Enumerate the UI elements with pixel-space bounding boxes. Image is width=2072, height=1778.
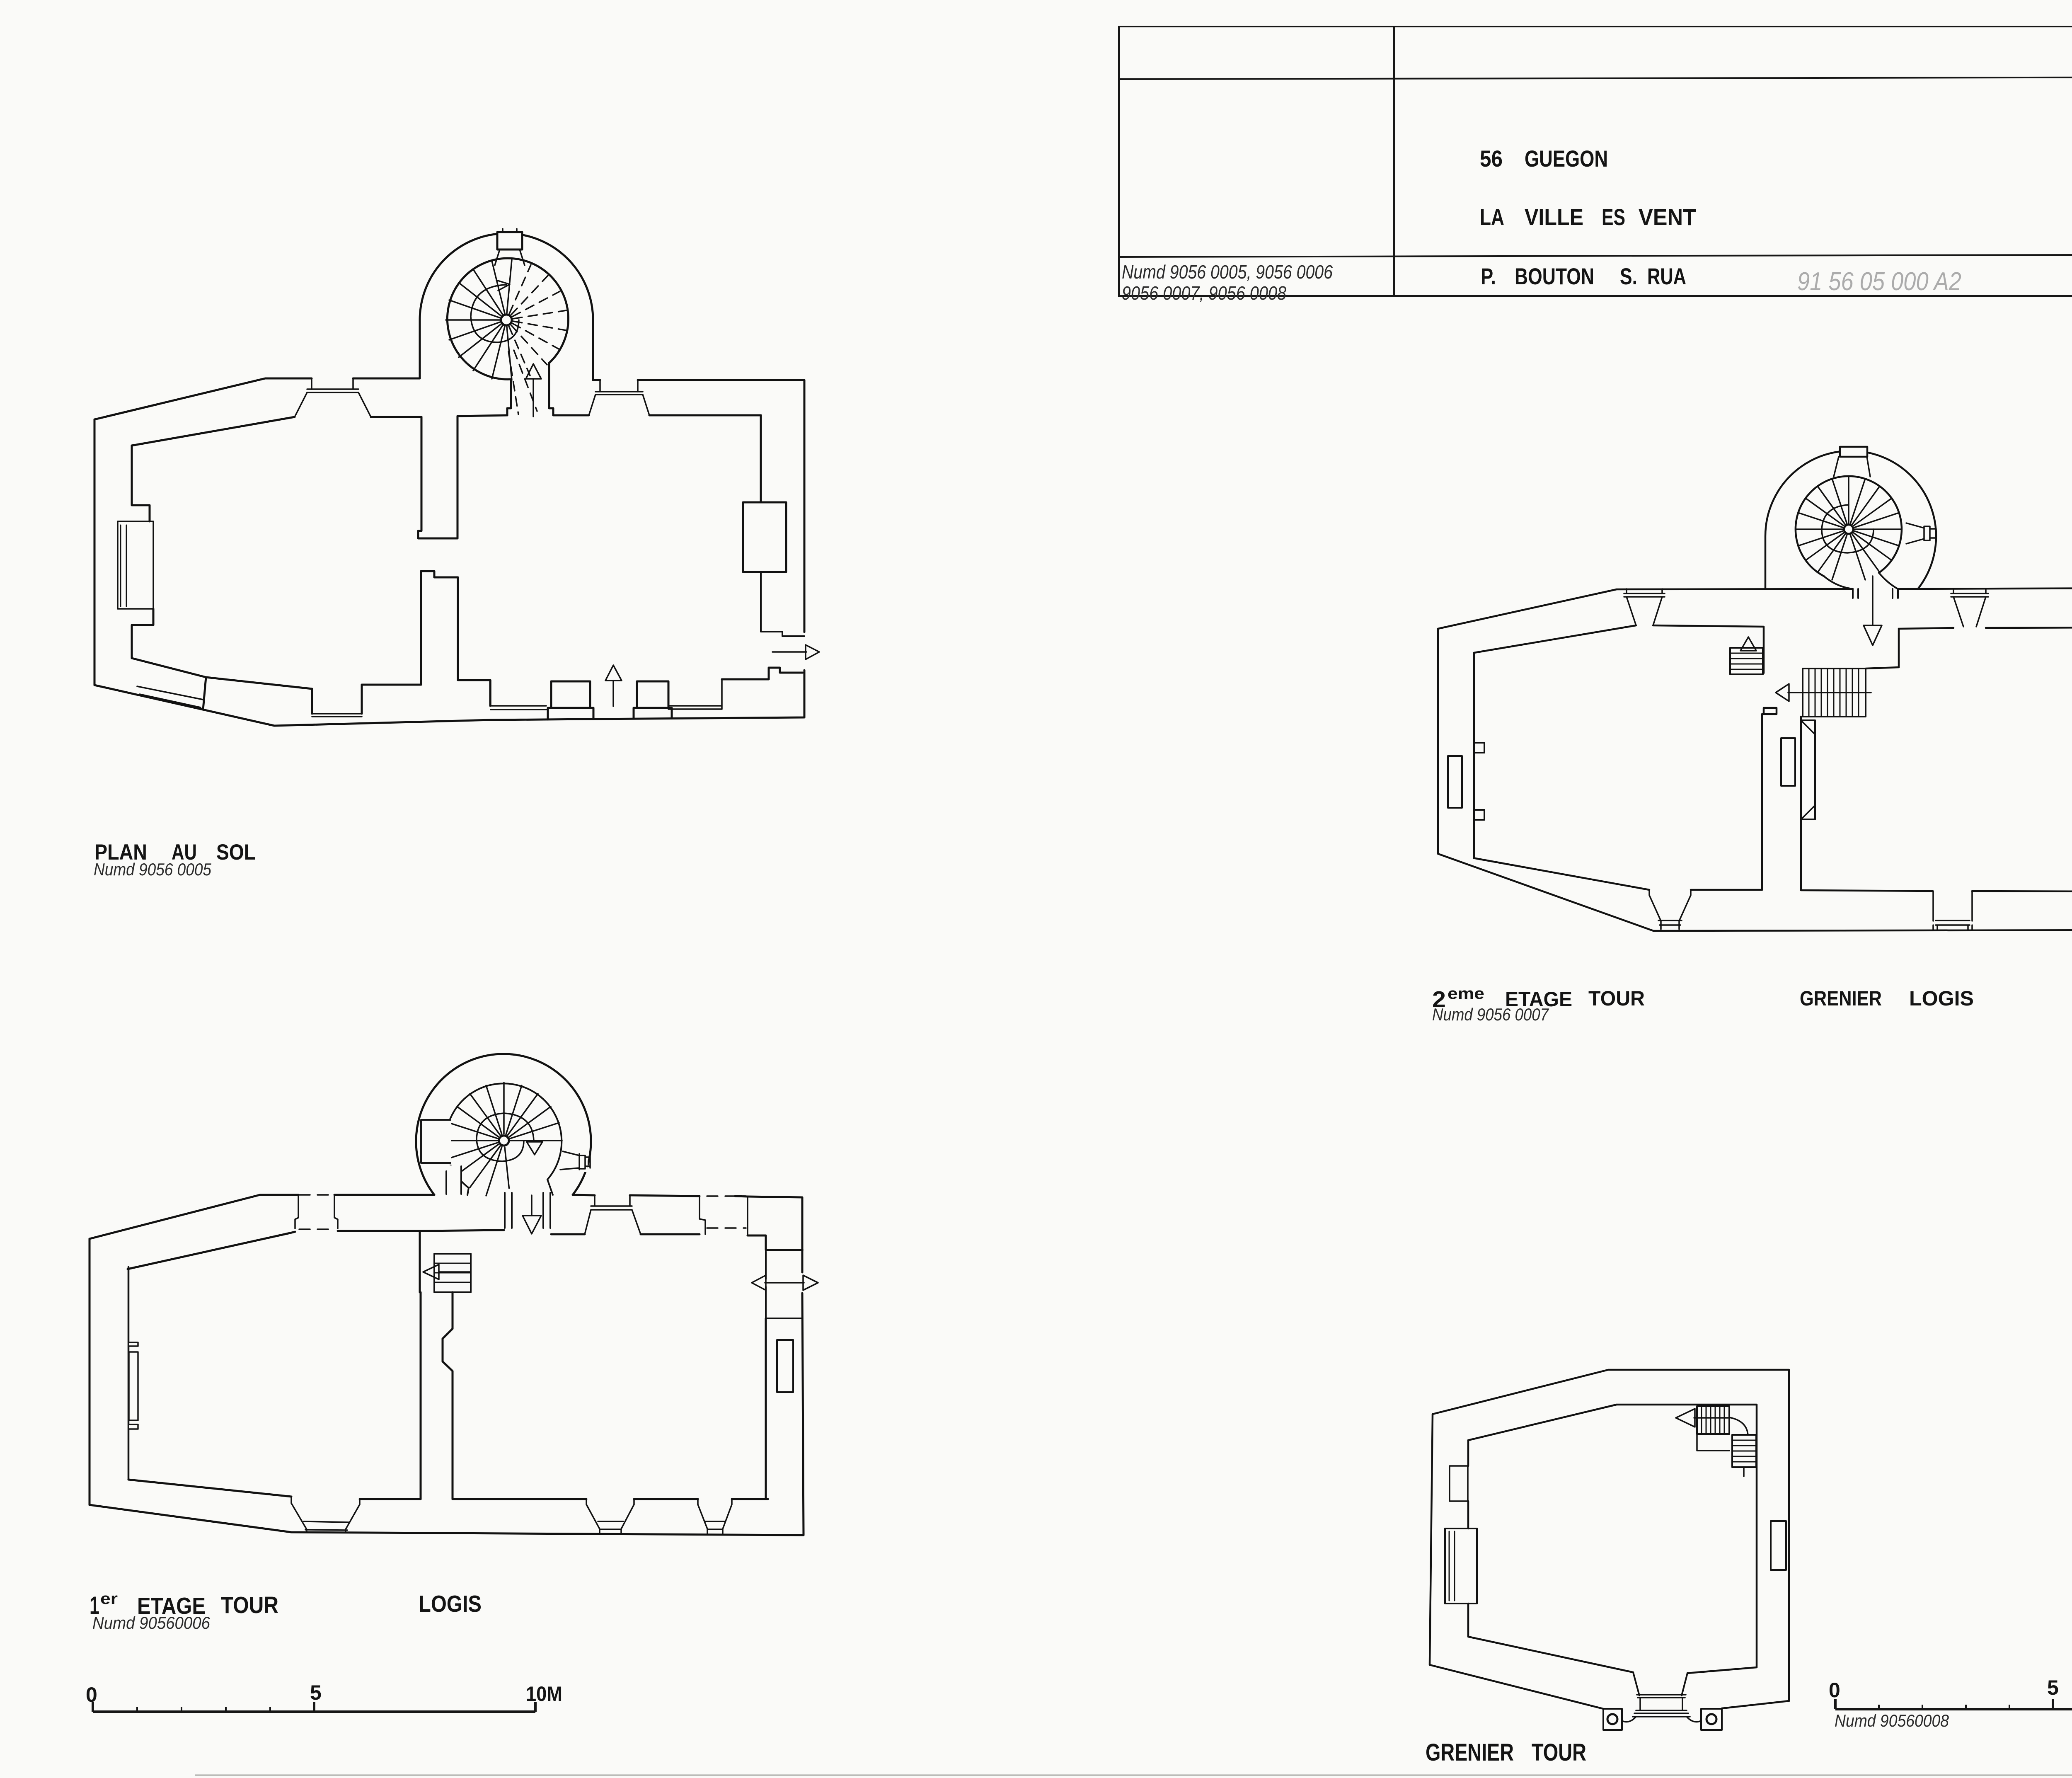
- svg-text:9056 0007, 9056 0008: 9056 0007, 9056 0008: [1122, 282, 1286, 304]
- svg-text:Numd 9056 0005: Numd 9056 0005: [94, 860, 212, 879]
- svg-text:Numd 90560008: Numd 90560008: [1835, 1711, 1949, 1730]
- svg-text:er: er: [100, 1590, 118, 1608]
- svg-text:GRENIER: GRENIER: [1800, 987, 1882, 1010]
- svg-text:P.: P.: [1481, 263, 1496, 289]
- svg-text:TOUR: TOUR: [1532, 1739, 1586, 1766]
- svg-text:RUA: RUA: [1647, 263, 1686, 289]
- svg-text:VENT: VENT: [1639, 204, 1696, 230]
- svg-text:56: 56: [1480, 145, 1503, 172]
- svg-text:GRENIER: GRENIER: [1426, 1739, 1514, 1766]
- svg-text:LOGIS: LOGIS: [419, 1591, 482, 1617]
- svg-text:S.: S.: [1620, 263, 1637, 289]
- svg-text:5: 5: [2047, 1676, 2059, 1699]
- svg-text:Numd 9056 0007: Numd 9056 0007: [1432, 1005, 1549, 1024]
- svg-text:0: 0: [86, 1683, 97, 1706]
- svg-text:LOGIS: LOGIS: [1909, 987, 1974, 1010]
- svg-text:ES: ES: [1602, 204, 1625, 230]
- svg-text:10M: 10M: [526, 1682, 562, 1705]
- svg-text:91 56 05 000 A2: 91 56 05 000 A2: [1797, 267, 1961, 296]
- svg-text:0: 0: [1829, 1679, 1840, 1702]
- svg-text:eme: eme: [1447, 985, 1484, 1003]
- svg-text:LA: LA: [1480, 204, 1504, 230]
- svg-text:Numd 90560006: Numd 90560006: [92, 1613, 211, 1633]
- svg-text:GUEGON: GUEGON: [1525, 145, 1608, 172]
- svg-text:BOUTON: BOUTON: [1515, 263, 1594, 289]
- svg-text:TOUR: TOUR: [1588, 987, 1645, 1010]
- svg-text:Numd 9056 0005, 9056 0006: Numd 9056 0005, 9056 0006: [1122, 261, 1333, 283]
- svg-text:5: 5: [310, 1681, 322, 1704]
- svg-text:TOUR: TOUR: [221, 1592, 278, 1618]
- svg-text:VILLE: VILLE: [1525, 204, 1583, 230]
- svg-text:SOL: SOL: [216, 840, 256, 865]
